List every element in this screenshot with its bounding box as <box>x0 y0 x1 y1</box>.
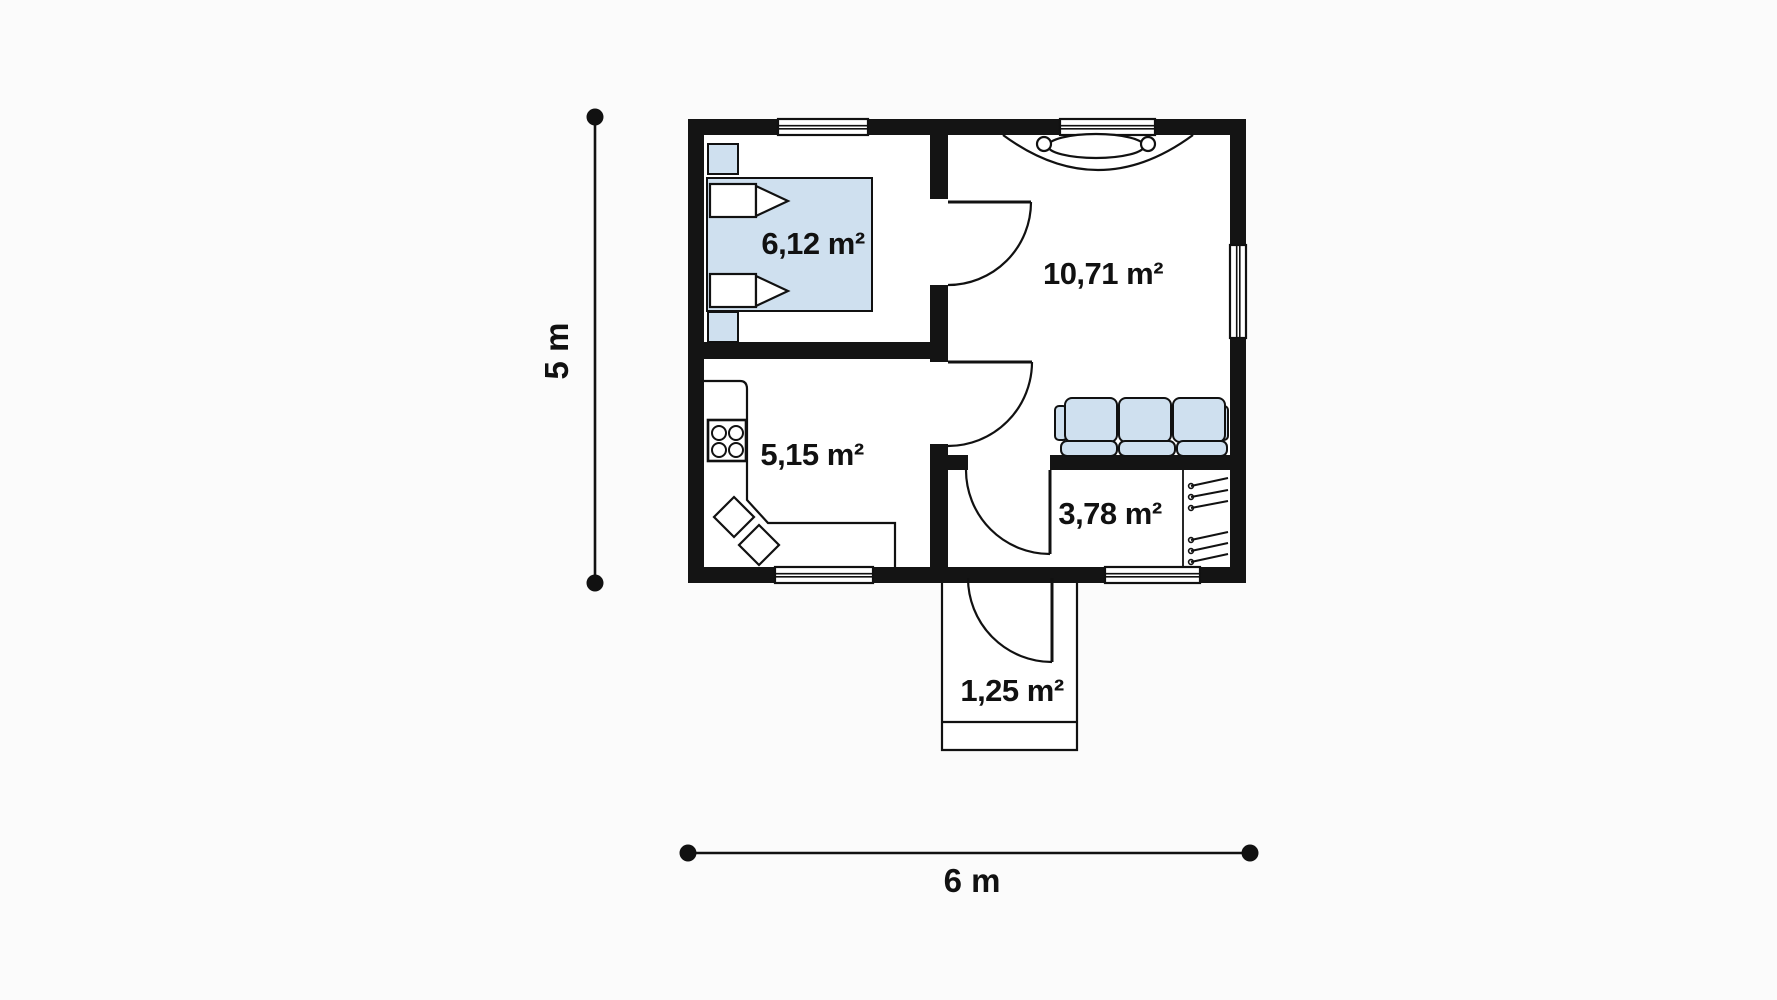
sofa-back <box>1177 441 1227 456</box>
kitchen-window-icon <box>775 567 873 583</box>
wall-exterior-right <box>1230 119 1246 583</box>
nightstand-top-icon <box>708 144 738 174</box>
wall-center-lower <box>930 444 948 567</box>
width-dimension: 6 m <box>680 845 1259 900</box>
sofa-seat <box>1119 398 1171 442</box>
wall-exterior-left <box>688 119 704 583</box>
living-area-label: 10,71 m² <box>1043 256 1163 291</box>
bathroom-area-label: 3,78 m² <box>1058 496 1162 531</box>
dimension-dot <box>1242 845 1259 862</box>
height-dimension: 5 m <box>538 109 604 592</box>
dimension-dot <box>680 845 697 862</box>
bedroom-window-icon <box>778 119 868 135</box>
floor-plan-canvas: 6,12 m² 10,71 m² 5,15 m² 3,78 m² 1,25 m²… <box>0 0 1777 1000</box>
sofa-icon <box>1055 398 1228 456</box>
living-window-icon <box>1060 119 1155 135</box>
bathroom-window-icon <box>1105 567 1200 583</box>
porch-area-label: 1,25 m² <box>960 673 1064 708</box>
porch-floor <box>942 583 1077 750</box>
wall-bedroom-kitchen <box>704 342 930 359</box>
wall-bathroom-stub <box>948 455 968 470</box>
wall-center-upper <box>930 135 948 199</box>
sofa-back <box>1119 441 1175 456</box>
right-wall-window-icon <box>1230 245 1246 338</box>
dimension-dot <box>587 109 604 126</box>
width-dimension-label: 6 m <box>944 862 1001 899</box>
kitchen-area-label: 5,15 m² <box>760 437 864 472</box>
wall-exterior-top <box>688 119 1246 135</box>
bedroom-area-label: 6,12 m² <box>761 226 865 261</box>
sofa-seat <box>1065 398 1117 442</box>
height-dimension-label: 5 m <box>538 323 575 380</box>
stove-icon <box>708 420 746 461</box>
floor-plan-drawing: 6,12 m² 10,71 m² 5,15 m² 3,78 m² 1,25 m²… <box>0 0 1777 1000</box>
wall-bathroom-top <box>1050 455 1230 470</box>
wall-center-middle <box>930 285 948 362</box>
nightstand-bottom-icon <box>708 312 738 342</box>
sofa-back <box>1061 441 1117 456</box>
sofa-seat <box>1173 398 1225 442</box>
dimension-dot <box>587 575 604 592</box>
